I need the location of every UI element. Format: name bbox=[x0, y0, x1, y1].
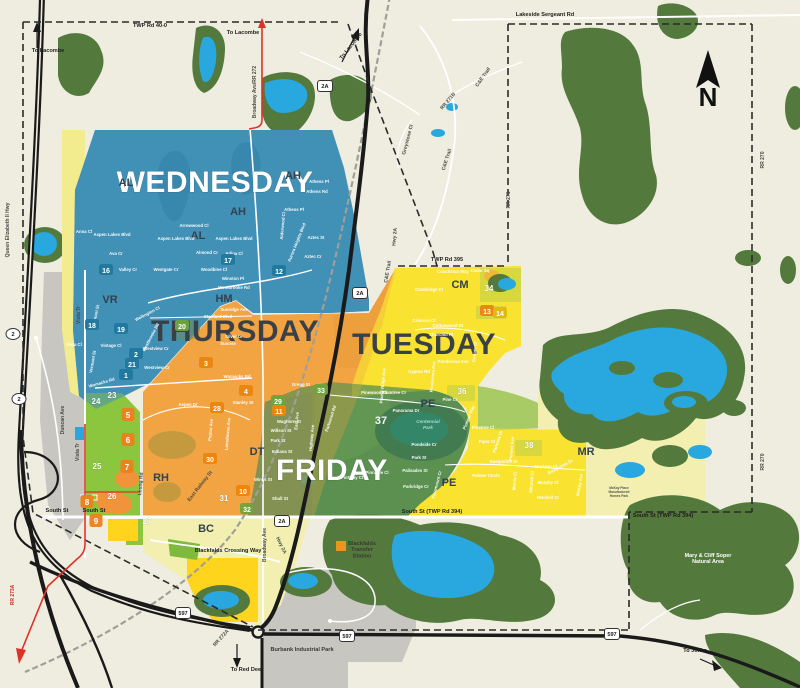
street-label: Pondside Cr bbox=[411, 442, 437, 447]
area-code-label: AH bbox=[285, 170, 301, 182]
street-label: Aspen Dr bbox=[178, 402, 197, 407]
zone-number: 32 bbox=[243, 507, 251, 514]
zone-number: 4 bbox=[244, 389, 248, 396]
street-label: Womacks Rd bbox=[224, 374, 251, 379]
shield-number: 2A bbox=[356, 291, 363, 297]
zone-badge: 10 bbox=[236, 485, 250, 496]
road-label: Vista Tr bbox=[75, 443, 81, 461]
street-label: Portway Cl bbox=[341, 475, 363, 480]
road-label: To Lacombe bbox=[227, 30, 260, 36]
zone-badge: 28 bbox=[210, 402, 224, 413]
poi-label: McKay PlaceManufacturedHomes Park bbox=[609, 486, 630, 498]
zone-badge: 18 bbox=[85, 319, 99, 330]
street-label: Piper Cl bbox=[479, 439, 495, 444]
road-label: Duncan Ave bbox=[60, 406, 66, 435]
street-label: Anna Cl bbox=[76, 229, 92, 234]
zone-badge: 27 bbox=[143, 517, 152, 526]
zone-number: 34 bbox=[485, 284, 494, 293]
street-label: Valley Cr bbox=[119, 267, 137, 272]
zone-badge: 25 bbox=[93, 462, 102, 471]
street-label: Cedar Sq bbox=[471, 268, 490, 273]
street-label: Pinnacle Cl bbox=[365, 470, 388, 475]
street-label: Westgate Cr bbox=[154, 267, 179, 272]
street-label: Aspen Lakes Blvd bbox=[215, 236, 252, 241]
street-label: Athens Rd bbox=[306, 189, 328, 194]
street-label: Athens Pl bbox=[284, 207, 304, 212]
road-label: RR 270 bbox=[760, 151, 766, 168]
zone-number: 14 bbox=[496, 311, 504, 318]
zone-number: 19 bbox=[117, 327, 125, 334]
street-label: Woodbine Cl bbox=[201, 267, 227, 272]
area-code-label: CM bbox=[451, 279, 468, 291]
zone-number: 6 bbox=[126, 436, 131, 445]
area-code-label: DT bbox=[250, 446, 265, 458]
shield-number: 2A bbox=[321, 84, 328, 90]
area-code-label: HM bbox=[215, 293, 232, 305]
zone-badge: 11 bbox=[272, 405, 286, 416]
street-label: Westview Cr bbox=[143, 346, 169, 351]
street-label: Stanford Blvd bbox=[204, 314, 233, 319]
road-label: Blackfalds Crossing Way bbox=[195, 548, 263, 554]
shield-number: 597 bbox=[178, 611, 187, 617]
zone-number: 12 bbox=[275, 269, 283, 276]
zone-number: 26 bbox=[108, 492, 117, 501]
road-label: RR 271 bbox=[506, 191, 512, 208]
street-label: Vista Cl bbox=[66, 342, 82, 347]
area-code-label: PE bbox=[421, 398, 436, 410]
zone-number: 10 bbox=[239, 489, 247, 496]
zone-badge: 34 bbox=[485, 284, 494, 293]
road-label: South St (TWP Rd 394) bbox=[402, 509, 463, 515]
road-label: Broadway Ave/RR 272 bbox=[252, 66, 258, 119]
street-label: Aspen Lakes Blvd bbox=[93, 232, 130, 237]
street-label: Ponderosa Ave bbox=[438, 359, 470, 364]
street-label: Westbrooke Rd bbox=[218, 285, 250, 290]
zone-badge: 30 bbox=[203, 453, 217, 464]
street-label: Palisades St bbox=[402, 468, 428, 473]
street-label: Indiana St bbox=[272, 449, 293, 454]
zone-number: 29 bbox=[274, 399, 282, 406]
street-label: Silver Dr bbox=[225, 334, 243, 339]
poi-label: Burbank Industrial Park bbox=[270, 647, 334, 653]
zone-badge: 32 bbox=[240, 503, 254, 514]
town-map: N WEDNESDAY THURSDAY TUESDAY FRIDAY AHAH… bbox=[0, 0, 800, 688]
road-label: RR 270 bbox=[760, 453, 766, 470]
road-label: South St (TWP Rd 394) bbox=[633, 513, 694, 519]
zone-badge: 1 bbox=[119, 369, 133, 380]
zone-badge: 14 bbox=[493, 307, 507, 318]
road-label: TWP Rd 395 bbox=[431, 257, 463, 263]
road-label: Vista Tr bbox=[76, 306, 82, 324]
wednesday-label: WEDNESDAY bbox=[117, 166, 314, 199]
street-label: Aztec St bbox=[308, 235, 326, 240]
road-label: To Joffre bbox=[683, 648, 707, 654]
street-label: Cyprus Rd bbox=[408, 369, 430, 374]
street-label: Ava Cr bbox=[109, 251, 123, 256]
zone-badge: 36 bbox=[458, 387, 467, 396]
zone-number: 16 bbox=[102, 268, 110, 275]
area-code-label: RH bbox=[153, 472, 169, 484]
road-label: Lakeside Sergeant Rd bbox=[516, 12, 575, 18]
street-label: Churchill Pl bbox=[429, 332, 453, 337]
road-label: Queen Elizabeth II Hwy bbox=[5, 202, 11, 257]
street-label: Palmer Circle bbox=[472, 473, 500, 478]
street-label: Sunrise bbox=[220, 341, 236, 346]
street-label: Vintage Cl bbox=[101, 343, 122, 348]
zone-number: 37 bbox=[375, 415, 387, 427]
road-label: To Lacombe bbox=[32, 48, 65, 54]
street-label: Sunridge Ave bbox=[220, 307, 248, 312]
zone-number: 38 bbox=[525, 441, 534, 450]
area-code-label: VR bbox=[102, 294, 117, 306]
shield-number: 597 bbox=[607, 632, 616, 638]
zone-number: 18 bbox=[88, 323, 96, 330]
area-code-label: MR bbox=[577, 446, 594, 458]
zone-badge: 5 bbox=[122, 408, 135, 421]
street-label: Shull St bbox=[272, 496, 289, 501]
zone-badge: 20 bbox=[175, 320, 189, 331]
zone-badge: 29 bbox=[271, 395, 285, 406]
zone-badge: 31 bbox=[220, 494, 229, 503]
shield-number: 597 bbox=[342, 634, 351, 640]
street-label: Maclean Cl bbox=[535, 464, 557, 469]
zone-number: 3 bbox=[204, 361, 208, 368]
street-label: Gregg St bbox=[292, 382, 311, 387]
road-label: South St bbox=[83, 508, 106, 514]
zone-number: 24 bbox=[92, 397, 101, 406]
zone-badge: 33 bbox=[314, 384, 328, 395]
zone-badge: 23 bbox=[108, 391, 117, 400]
zone-badge: 19 bbox=[114, 323, 128, 334]
street-label: Aspen Lakes Blvd bbox=[157, 236, 194, 241]
zone-number: 36 bbox=[458, 387, 467, 396]
area-code-label: BC bbox=[198, 523, 214, 535]
zone-badge: 38 bbox=[525, 441, 534, 450]
highway-shield: 2A bbox=[318, 81, 333, 92]
zone-number: 17 bbox=[224, 258, 232, 265]
road-label: To Red Deer bbox=[231, 667, 264, 673]
zone-number: 31 bbox=[220, 494, 229, 503]
compass-letter: N bbox=[699, 82, 718, 112]
street-label: Almond Cr bbox=[196, 250, 218, 255]
highway-shield: 2A bbox=[353, 288, 368, 299]
street-label: Cambridge Cl bbox=[415, 287, 443, 292]
street-label: Coachman Way bbox=[437, 269, 469, 274]
zone-number: 28 bbox=[213, 406, 221, 413]
zone-number: 2 bbox=[134, 352, 138, 359]
zone-badge: 7 bbox=[121, 460, 134, 473]
street-label: Parkridge Cr bbox=[403, 484, 429, 489]
street-label: Arrowwood Cl bbox=[179, 223, 208, 228]
shield-number: 2A bbox=[278, 519, 285, 525]
zone-badge: 3 bbox=[199, 357, 213, 368]
map-viewport: N WEDNESDAY THURSDAY TUESDAY FRIDAY AHAH… bbox=[0, 0, 800, 688]
road-label: South St bbox=[46, 508, 69, 514]
zone-number: 7 bbox=[125, 463, 130, 472]
zone-badge: 16 bbox=[99, 264, 113, 275]
road-label: TWP Rd 40-0 bbox=[133, 23, 167, 29]
zone-number: 23 bbox=[108, 391, 117, 400]
street-label: Aztec Cr bbox=[304, 254, 322, 259]
street-label: Westview Cr bbox=[144, 365, 170, 370]
zone-badge: 2 bbox=[129, 348, 143, 359]
highway-shield: 597 bbox=[176, 608, 191, 619]
highway-shield: 2A bbox=[275, 516, 290, 527]
zone-badge: 17 bbox=[221, 254, 235, 265]
zone-number: 25 bbox=[93, 462, 102, 471]
street-label: Panorama Dr bbox=[393, 408, 420, 413]
street-label: Athens Pl bbox=[309, 179, 329, 184]
zone-number: 9 bbox=[94, 517, 99, 526]
highway-shield: 597 bbox=[605, 629, 620, 640]
street-label: Park St bbox=[271, 438, 286, 443]
street-label: Eastpointe Dr bbox=[490, 459, 518, 464]
zone-badge: 12 bbox=[272, 265, 286, 276]
zone-number: 30 bbox=[206, 457, 214, 464]
street-label: Pinetree Cl bbox=[472, 425, 494, 430]
zone-number: 27 bbox=[143, 517, 152, 526]
street-label: Stanley St bbox=[233, 400, 254, 405]
zone-badge: 6 bbox=[122, 433, 135, 446]
area-code-label: AH bbox=[230, 206, 246, 218]
highway-shield: 2 bbox=[12, 394, 26, 405]
zone-number: 13 bbox=[483, 309, 491, 316]
zone-badge: 26 bbox=[108, 492, 117, 501]
highway-shield: 2 bbox=[6, 329, 20, 340]
street-label: Cottonwood Dr bbox=[432, 323, 463, 328]
highway-shield: 597 bbox=[340, 631, 355, 642]
street-label: Winston Pl bbox=[222, 276, 244, 281]
zone-number: 11 bbox=[275, 409, 283, 416]
zone-number: 21 bbox=[128, 362, 136, 369]
street-label: Park St bbox=[412, 455, 427, 460]
street-label: Mitchell Cr bbox=[537, 495, 559, 500]
zone-badge: 9 bbox=[90, 514, 103, 527]
road-label: Broadway Ave bbox=[262, 528, 268, 562]
street-label: Winks St bbox=[254, 477, 273, 482]
zone-number: 20 bbox=[178, 324, 186, 331]
zone-badge: 24 bbox=[92, 397, 101, 406]
zone-badge: 37 bbox=[375, 415, 387, 427]
zone-number: 8 bbox=[85, 498, 90, 507]
zone-badge: 13 bbox=[480, 305, 494, 316]
zone-badge: 4 bbox=[239, 385, 253, 396]
zone-badge: 8 bbox=[81, 495, 94, 508]
street-label: Murphy Cl bbox=[537, 480, 558, 485]
shield-number: 2 bbox=[11, 332, 14, 338]
street-label: Pinewood Cl bbox=[361, 390, 387, 395]
street-label: Willson St bbox=[271, 428, 292, 433]
zone-number: 33 bbox=[317, 388, 325, 395]
zone-number: 5 bbox=[126, 411, 131, 420]
road-label: RR 273A bbox=[10, 584, 16, 605]
area-code-label: AL bbox=[119, 177, 134, 189]
shield-number: 2 bbox=[17, 397, 20, 403]
transfer-station-icon bbox=[336, 541, 346, 551]
zone-number: 1 bbox=[124, 373, 128, 380]
zone-badge: 21 bbox=[125, 358, 139, 369]
area-code-label: PE bbox=[442, 477, 457, 489]
street-label: Pine Cr bbox=[442, 397, 457, 402]
